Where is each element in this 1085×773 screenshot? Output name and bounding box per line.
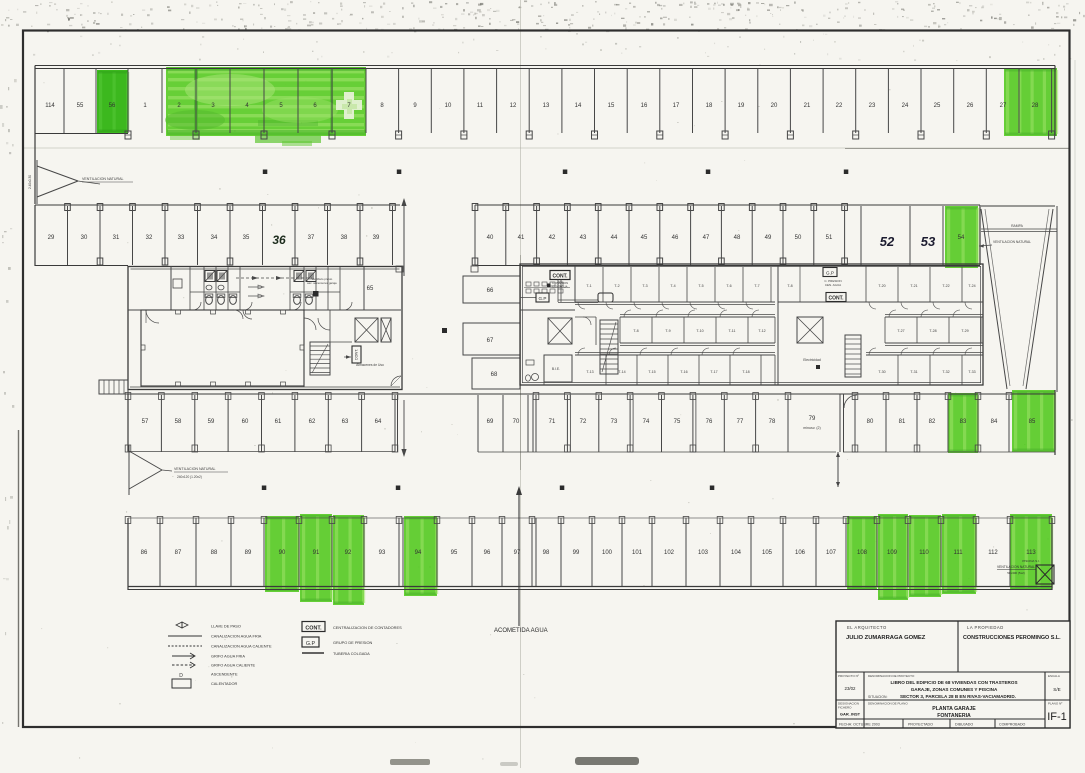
svg-text:76: 76 <box>706 419 713 425</box>
svg-text:T-10: T-10 <box>696 329 703 333</box>
svg-text:DIBUJADO: DIBUJADO <box>955 723 973 727</box>
svg-text:RAMPA: RAMPA <box>1011 224 1024 228</box>
svg-text:40: 40 <box>487 235 494 241</box>
svg-text:CANALIZACION AGUA FRIA: CANALIZACION AGUA FRIA <box>211 634 262 639</box>
svg-text:27: 27 <box>1000 103 1007 109</box>
svg-text:T-27: T-27 <box>897 329 904 333</box>
svg-text:T-8: T-8 <box>787 284 792 288</box>
svg-text:SECTOR 3, PARCELA 28 B EN: SECTOR 3, PARCELA 28 B EN RIVAS-VACIAMAD… <box>900 694 1016 699</box>
svg-text:ESCALA: ESCALA <box>1048 674 1060 678</box>
svg-text:T-33: T-33 <box>968 370 975 374</box>
svg-text:107: 107 <box>826 550 837 556</box>
svg-text:58: 58 <box>175 419 182 425</box>
svg-text:44: 44 <box>611 235 618 241</box>
svg-text:105: 105 <box>762 550 773 556</box>
svg-text:25: 25 <box>934 103 941 109</box>
svg-text:82: 82 <box>929 419 936 425</box>
svg-text:38: 38 <box>341 235 348 241</box>
svg-text:16: 16 <box>641 103 648 109</box>
svg-text:13: 13 <box>543 103 550 109</box>
svg-text:35: 35 <box>243 235 250 241</box>
svg-text:28: 28 <box>1032 103 1039 109</box>
svg-text:63: 63 <box>342 419 349 425</box>
svg-text:100: 100 <box>602 550 613 556</box>
svg-text:B.I.E.: B.I.E. <box>552 367 560 371</box>
svg-text:26: 26 <box>967 103 974 109</box>
svg-text:106: 106 <box>795 550 806 556</box>
svg-text:T-29: T-29 <box>961 329 968 333</box>
svg-text:17: 17 <box>673 103 680 109</box>
svg-text:GRIFO AGUA CALIENTE: GRIFO AGUA CALIENTE <box>211 663 256 668</box>
svg-text:55: 55 <box>77 103 84 109</box>
svg-text:78: 78 <box>769 419 776 425</box>
svg-text:92: 92 <box>345 550 352 556</box>
svg-text:T-22: T-22 <box>942 284 949 288</box>
svg-text:19: 19 <box>738 103 745 109</box>
svg-text:VENTILACION NATURAL: VENTILACION NATURAL <box>997 565 1035 569</box>
svg-text:D: D <box>179 673 183 679</box>
svg-text:75: 75 <box>674 419 681 425</box>
svg-text:113: 113 <box>1026 550 1036 556</box>
svg-text:93: 93 <box>379 550 386 556</box>
svg-text:47: 47 <box>703 235 710 241</box>
svg-text:36: 36 <box>272 233 286 247</box>
svg-text:DENOMINACION DE PLANO: DENOMINACION DE PLANO <box>868 702 908 706</box>
svg-text:109: 109 <box>887 550 898 556</box>
svg-text:CONT.: CONT. <box>305 626 322 632</box>
svg-text:T-20: T-20 <box>878 284 885 288</box>
svg-text:T-6: T-6 <box>726 284 731 288</box>
svg-text:240x120 (1.20x2): 240x120 (1.20x2) <box>177 475 202 479</box>
svg-text:CALENTADOR: CALENTADOR <box>211 681 237 686</box>
svg-text:CONSTRUCCIONES PEROMINGO S.L: CONSTRUCCIONES PEROMINGO S.L. <box>963 635 1061 641</box>
svg-text:T-1: T-1 <box>586 284 591 288</box>
svg-text:PROYECTADO: PROYECTADO <box>908 723 933 727</box>
svg-text:37: 37 <box>308 235 315 241</box>
svg-text:102: 102 <box>664 550 675 556</box>
svg-text:83: 83 <box>960 419 967 425</box>
svg-text:51: 51 <box>826 235 833 241</box>
svg-text:CONT.: CONT. <box>553 274 569 280</box>
svg-text:49: 49 <box>765 235 772 241</box>
svg-text:GAR_INST: GAR_INST <box>840 712 861 717</box>
svg-text:69: 69 <box>487 419 494 425</box>
svg-text:104: 104 <box>731 550 742 556</box>
svg-text:S/E: S/E <box>1053 687 1060 692</box>
svg-text:67: 67 <box>487 338 494 344</box>
svg-text:101: 101 <box>632 550 643 556</box>
svg-text:72: 72 <box>580 419 587 425</box>
svg-text:22: 22 <box>836 103 843 109</box>
svg-text:COMPROBADO: COMPROBADO <box>999 723 1026 727</box>
svg-text:11: 11 <box>477 103 484 109</box>
svg-text:70: 70 <box>513 419 520 425</box>
svg-text:65: 65 <box>367 286 374 292</box>
svg-text:46: 46 <box>672 235 679 241</box>
svg-text:90: 90 <box>279 550 286 556</box>
svg-text:VENTILACION NATURAL: VENTILACION NATURAL <box>174 467 215 471</box>
svg-text:64: 64 <box>375 419 382 425</box>
svg-text:61: 61 <box>275 419 282 425</box>
svg-text:54: 54 <box>958 235 965 241</box>
svg-text:LLAVE DE PASO: LLAVE DE PASO <box>211 624 241 629</box>
svg-text:114: 114 <box>45 103 55 109</box>
svg-text:95: 95 <box>451 550 458 556</box>
svg-text:15: 15 <box>608 103 615 109</box>
svg-text:GARAJE, ZONAS COMUNES Y PI: GARAJE, ZONAS COMUNES Y PISCINA <box>911 687 998 692</box>
svg-text:74: 74 <box>643 419 650 425</box>
svg-text:T-5: T-5 <box>698 284 703 288</box>
svg-text:G.P: G.P <box>826 271 834 276</box>
svg-text:91: 91 <box>313 550 320 556</box>
svg-text:T-13: T-13 <box>586 370 593 374</box>
svg-text:79: 79 <box>809 416 816 422</box>
svg-text:CON. AGUA: CON. AGUA <box>552 285 568 289</box>
svg-text:20: 20 <box>771 103 778 109</box>
svg-text:VENTILACION NATURAL: VENTILACION NATURAL <box>993 240 1031 244</box>
svg-text:112: 112 <box>988 550 998 556</box>
svg-text:103: 103 <box>698 550 709 556</box>
svg-text:FECHA: OCTUBRE 2003: FECHA: OCTUBRE 2003 <box>839 723 880 727</box>
svg-text:T-15: T-15 <box>648 370 655 374</box>
svg-text:ASCENDENTE: ASCENDENTE <box>211 672 238 677</box>
svg-text:T-8: T-8 <box>633 329 638 333</box>
svg-text:68: 68 <box>491 372 498 378</box>
svg-text:T-21: T-21 <box>910 284 917 288</box>
svg-text:GRUPO DE PRESION: GRUPO DE PRESION <box>333 640 373 645</box>
svg-text:59: 59 <box>208 419 215 425</box>
svg-text:57: 57 <box>142 419 149 425</box>
svg-text:T-30: T-30 <box>878 370 885 374</box>
svg-text:29: 29 <box>48 235 55 241</box>
svg-text:Electricidad: Electricidad <box>803 358 821 362</box>
svg-text:T-31: T-31 <box>910 370 917 374</box>
svg-text:21: 21 <box>804 103 811 109</box>
svg-text:30: 30 <box>81 235 88 241</box>
svg-text:66: 66 <box>487 288 494 294</box>
svg-text:33: 33 <box>178 235 185 241</box>
svg-text:99: 99 <box>573 550 580 556</box>
svg-text:24: 24 <box>902 103 909 109</box>
svg-text:LA PROPIEDAD: LA PROPIEDAD <box>967 625 1004 630</box>
svg-text:50: 50 <box>795 235 802 241</box>
svg-text:96: 96 <box>484 550 491 556</box>
svg-text:94: 94 <box>415 550 422 556</box>
svg-text:62: 62 <box>309 419 316 425</box>
svg-text:18: 18 <box>706 103 713 109</box>
svg-text:80: 80 <box>867 419 874 425</box>
svg-text:PLANTA GARAJE: PLANTA GARAJE <box>932 706 976 712</box>
svg-text:T-12: T-12 <box>758 329 765 333</box>
svg-text:CONT.: CONT. <box>829 296 845 302</box>
svg-text:PISCINA S.I.: PISCINA S.I. <box>1022 559 1039 563</box>
svg-text:53: 53 <box>921 234 936 249</box>
svg-text:32: 32 <box>146 235 153 241</box>
svg-text:LIBRO DEL EDIFICIO DE 68: LIBRO DEL EDIFICIO DE 68 VIVIENDAS CON T… <box>890 680 1017 685</box>
svg-text:T-9: T-9 <box>665 329 670 333</box>
svg-text:EL ARQUITECTO: EL ARQUITECTO <box>847 625 887 630</box>
svg-text:111: 111 <box>953 550 963 556</box>
svg-text:DENOMINACION DE PROYECTO: DENOMINACION DE PROYECTO <box>868 674 915 678</box>
svg-text:ACOMETIDA AGUA: ACOMETIDA AGUA <box>494 628 548 634</box>
svg-text:87: 87 <box>175 550 182 556</box>
svg-text:T-4: T-4 <box>670 284 675 288</box>
svg-text:CENTRALIZACION DE CONTADORES: CENTRALIZACION DE CONTADORES <box>333 625 402 630</box>
svg-text:88: 88 <box>211 550 218 556</box>
svg-text:41: 41 <box>518 235 525 241</box>
svg-text:JULIO ZUMARRAGA GOMEZ: JULIO ZUMARRAGA GOMEZ <box>846 635 926 641</box>
svg-text:39: 39 <box>373 235 380 241</box>
svg-text:71: 71 <box>549 419 556 425</box>
svg-text:asc. ascensores garaje: asc. ascensores garaje <box>307 281 337 285</box>
svg-text:86: 86 <box>141 550 148 556</box>
svg-text:CONT.: CONT. <box>355 349 359 360</box>
svg-text:81: 81 <box>899 419 906 425</box>
svg-text:VENTILACION NATURAL: VENTILACION NATURAL <box>82 177 123 181</box>
svg-text:110: 110 <box>919 550 929 556</box>
svg-text:85: 85 <box>1029 419 1036 425</box>
svg-text:minusv. (2): minusv. (2) <box>803 426 821 430</box>
svg-text:73: 73 <box>611 419 618 425</box>
svg-text:TUBERIA COLGADA: TUBERIA COLGADA <box>333 651 370 656</box>
svg-text:45: 45 <box>641 235 648 241</box>
svg-text:GRIFO AGUA FRIA: GRIFO AGUA FRIA <box>211 654 245 659</box>
svg-text:IF-1: IF-1 <box>1047 711 1067 723</box>
svg-text:T-11: T-11 <box>729 329 736 333</box>
svg-text:84: 84 <box>991 419 998 425</box>
svg-text:PROYECTO Nº: PROYECTO Nº <box>838 674 860 678</box>
svg-text:31: 31 <box>113 235 120 241</box>
svg-text:T-14: T-14 <box>618 370 625 374</box>
svg-text:T-28: T-28 <box>929 329 936 333</box>
svg-text:SITUACION:: SITUACION: <box>868 695 887 699</box>
svg-text:T-16: T-16 <box>680 370 687 374</box>
svg-text:43: 43 <box>580 235 587 241</box>
svg-text:FICHERO: FICHERO <box>838 706 852 710</box>
svg-text:48: 48 <box>734 235 741 241</box>
svg-text:FONTANERIA: FONTANERIA <box>937 713 971 719</box>
svg-text:T-32: T-32 <box>942 370 949 374</box>
svg-text:42: 42 <box>549 235 556 241</box>
svg-text:CEN. AGUA: CEN. AGUA <box>825 283 841 287</box>
svg-text:2.40x0.30: 2.40x0.30 <box>28 175 32 189</box>
svg-text:14: 14 <box>575 103 582 109</box>
svg-text:12: 12 <box>510 103 517 109</box>
svg-text:60: 60 <box>242 419 249 425</box>
svg-text:CANALIZACION AGUA CALIENTE: CANALIZACION AGUA CALIENTE <box>211 644 272 649</box>
svg-text:56: 56 <box>109 103 116 109</box>
svg-text:97: 97 <box>514 550 521 556</box>
svg-text:T-3: T-3 <box>642 284 647 288</box>
svg-text:G.P: G.P <box>306 641 316 647</box>
svg-text:T-17: T-17 <box>710 370 717 374</box>
svg-text:52: 52 <box>880 234 895 249</box>
svg-text:50x300 (5x2): 50x300 (5x2) <box>1007 571 1025 575</box>
svg-text:10: 10 <box>445 103 452 109</box>
svg-text:98: 98 <box>543 550 550 556</box>
svg-text:23: 23 <box>869 103 876 109</box>
svg-text:108: 108 <box>857 550 868 556</box>
svg-text:PLANO Nº: PLANO Nº <box>1048 702 1063 706</box>
svg-text:23/02: 23/02 <box>845 686 857 691</box>
svg-text:Almacenes de Uso: Almacenes de Uso <box>356 363 384 367</box>
svg-text:T-7: T-7 <box>754 284 759 288</box>
svg-text:89: 89 <box>245 550 252 556</box>
svg-text:34: 34 <box>211 235 218 241</box>
svg-text:G.P: G.P <box>539 296 547 301</box>
svg-text:T-24: T-24 <box>968 284 975 288</box>
svg-text:77: 77 <box>737 419 744 425</box>
svg-text:T-2: T-2 <box>614 284 619 288</box>
svg-text:T-18: T-18 <box>742 370 749 374</box>
